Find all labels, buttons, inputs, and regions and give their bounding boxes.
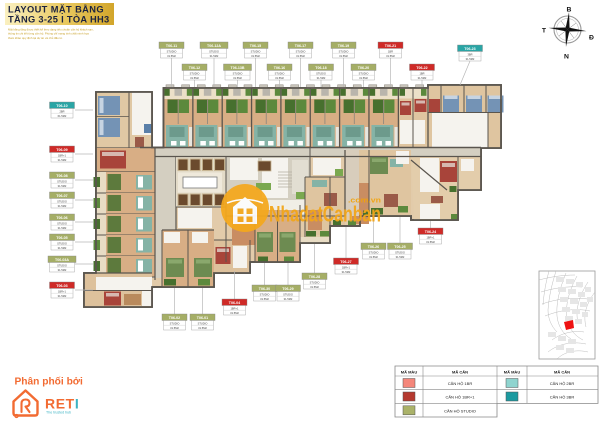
svg-text:Phân phối bởi: Phân phối bởi <box>15 376 84 388</box>
svg-text:31.5M2: 31.5M2 <box>369 255 378 259</box>
svg-text:T06-11: T06-11 <box>166 44 177 48</box>
svg-text:T06-13B: T06-13B <box>231 66 245 70</box>
svg-text:1BR: 1BR <box>388 50 393 54</box>
svg-text:31.5M2: 31.5M2 <box>58 158 67 162</box>
svg-text:31.5M2: 31.5M2 <box>58 226 67 230</box>
svg-text:T06-04: T06-04 <box>229 301 240 305</box>
svg-text:CĂN HỘ 3BR: CĂN HỘ 3BR <box>550 395 575 400</box>
svg-text:STUDIO: STUDIO <box>310 281 320 285</box>
svg-text:T06-08: T06-08 <box>56 174 67 178</box>
svg-text:STUDIO: STUDIO <box>57 222 67 226</box>
svg-text:31.5M2: 31.5M2 <box>339 54 348 58</box>
svg-text:T06-01: T06-01 <box>197 316 208 320</box>
svg-text:T06-17: T06-17 <box>295 44 306 48</box>
svg-text:MÃ CĂN: MÃ CĂN <box>554 370 570 375</box>
svg-text:STUDIO: STUDIO <box>57 180 67 184</box>
svg-text:31.5M2: 31.5M2 <box>230 311 239 315</box>
svg-text:31.5M2: 31.5M2 <box>426 240 435 244</box>
svg-text:31.5M2: 31.5M2 <box>260 297 269 301</box>
svg-text:STUDIO: STUDIO <box>395 251 405 255</box>
svg-text:T06-16: T06-16 <box>274 66 285 70</box>
svg-text:CĂN HỘ STUDIO: CĂN HỘ STUDIO <box>444 408 476 413</box>
svg-text:T06-21: T06-21 <box>385 44 396 48</box>
svg-text:3BR: 3BR <box>467 53 472 57</box>
svg-text:T06-28: T06-28 <box>309 275 320 279</box>
svg-text:MÃ MÀU: MÃ MÀU <box>401 370 418 375</box>
svg-text:STUDIO: STUDIO <box>251 50 261 54</box>
svg-text:31.5M2: 31.5M2 <box>58 268 67 272</box>
svg-text:31.5M2: 31.5M2 <box>418 76 427 80</box>
svg-text:CĂN HỘ 2BR: CĂN HỘ 2BR <box>550 381 575 386</box>
svg-text:CĂN HỘ 1BR: CĂN HỘ 1BR <box>448 381 473 386</box>
svg-text:T06-10: T06-10 <box>56 104 67 108</box>
svg-text:STUDIO: STUDIO <box>339 50 349 54</box>
svg-text:T06-24: T06-24 <box>425 230 436 234</box>
svg-text:31.5M2: 31.5M2 <box>284 297 293 301</box>
svg-text:31.5M2: 31.5M2 <box>167 54 176 58</box>
svg-text:T06-30: T06-30 <box>259 287 270 291</box>
svg-text:STUDIO: STUDIO <box>170 322 180 326</box>
svg-text:T06-05: T06-05 <box>56 236 67 240</box>
svg-text:STUDIO: STUDIO <box>57 264 67 268</box>
svg-text:T06-06: T06-06 <box>56 216 67 220</box>
svg-text:T06-20: T06-20 <box>358 66 369 70</box>
svg-text:STUDIO: STUDIO <box>369 251 379 255</box>
svg-text:NhadatCanban: NhadatCanban <box>269 202 381 227</box>
svg-text:T06-03: T06-03 <box>56 284 67 288</box>
svg-text:LAYOUT MẶT BẰNG: LAYOUT MẶT BẰNG <box>8 5 104 15</box>
svg-text:61.5M2: 61.5M2 <box>58 114 67 118</box>
svg-text:T06-15: T06-15 <box>250 44 261 48</box>
svg-text:STUDIO: STUDIO <box>167 50 177 54</box>
svg-text:MÃ MÀU: MÃ MÀU <box>504 370 521 375</box>
svg-text:STUDIO: STUDIO <box>260 293 270 297</box>
svg-text:1BR+1: 1BR+1 <box>58 290 67 294</box>
svg-text:RETI: RETI <box>45 396 79 412</box>
svg-text:31.5M2: 31.5M2 <box>58 204 67 208</box>
svg-text:2BR: 2BR <box>59 110 64 114</box>
svg-text:T06-09: T06-09 <box>56 148 67 152</box>
svg-text:31.5M2: 31.5M2 <box>466 57 475 61</box>
svg-text:T06-18: T06-18 <box>315 66 326 70</box>
svg-text:31.5M2: 31.5M2 <box>251 54 260 58</box>
svg-text:31.5M2: 31.5M2 <box>275 76 284 80</box>
svg-text:T06-29: T06-29 <box>282 287 293 291</box>
svg-text:STUDIO: STUDIO <box>316 72 326 76</box>
svg-text:CĂN HỘ 1BR+1: CĂN HỘ 1BR+1 <box>445 395 475 400</box>
svg-text:31.5M2: 31.5M2 <box>317 76 326 80</box>
svg-text:TẦNG 3-25 I TÒA HH3: TẦNG 3-25 I TÒA HH3 <box>8 14 109 25</box>
svg-text:1BR+1: 1BR+1 <box>426 236 435 240</box>
svg-text:31.5M2: 31.5M2 <box>233 76 242 80</box>
svg-text:31.5M2: 31.5M2 <box>58 246 67 250</box>
svg-text:31.5M2: 31.5M2 <box>342 270 351 274</box>
svg-text:31.5M2: 31.5M2 <box>198 326 207 330</box>
svg-text:N: N <box>564 54 569 61</box>
svg-text:1BR+1: 1BR+1 <box>230 307 239 311</box>
svg-text:tham khảo quy định tại dự án v: tham khảo quy định tại dự án và chủ đầu … <box>8 36 63 40</box>
svg-text:T06-12: T06-12 <box>189 66 200 70</box>
svg-text:STUDIO: STUDIO <box>57 200 67 204</box>
svg-text:STUDIO: STUDIO <box>275 72 285 76</box>
svg-text:31.5M2: 31.5M2 <box>296 54 305 58</box>
svg-text:.com.vn: .com.vn <box>348 196 381 205</box>
svg-text:T06-23: T06-23 <box>464 47 475 51</box>
svg-text:T06-03A: T06-03A <box>55 258 69 262</box>
svg-text:STUDIO: STUDIO <box>190 72 200 76</box>
svg-text:T06-22: T06-22 <box>416 66 427 70</box>
svg-text:1BR+1: 1BR+1 <box>342 266 351 270</box>
svg-text:The trusted hub: The trusted hub <box>46 411 71 415</box>
svg-text:MÃ CĂN: MÃ CĂN <box>452 370 468 375</box>
svg-text:31.5M2: 31.5M2 <box>396 255 405 259</box>
svg-text:T06-02: T06-02 <box>169 316 180 320</box>
svg-text:1BR+1: 1BR+1 <box>58 154 67 158</box>
svg-text:T06-12A: T06-12A <box>207 44 221 48</box>
svg-text:31.5M2: 31.5M2 <box>58 294 67 298</box>
svg-text:T06-27: T06-27 <box>340 260 351 264</box>
svg-text:T06-26: T06-26 <box>368 245 379 249</box>
svg-text:31.5M2: 31.5M2 <box>170 326 179 330</box>
svg-text:31.5M2: 31.5M2 <box>58 184 67 188</box>
svg-text:31.5M2: 31.5M2 <box>359 76 368 80</box>
svg-text:T06-25: T06-25 <box>394 245 405 249</box>
svg-text:STUDIO: STUDIO <box>283 293 293 297</box>
svg-text:Đ: Đ <box>589 35 594 42</box>
svg-text:STUDIO: STUDIO <box>198 322 208 326</box>
svg-text:T06-07: T06-07 <box>56 194 67 198</box>
svg-text:31.5M2: 31.5M2 <box>310 285 319 289</box>
svg-text:B: B <box>567 7 572 14</box>
svg-text:STUDIO: STUDIO <box>57 242 67 246</box>
svg-text:T06-19: T06-19 <box>338 44 349 48</box>
svg-text:1BR: 1BR <box>419 72 424 76</box>
svg-text:STUDIO: STUDIO <box>209 50 219 54</box>
svg-text:STUDIO: STUDIO <box>233 72 243 76</box>
svg-text:31.5M2: 31.5M2 <box>190 76 199 80</box>
svg-text:STUDIO: STUDIO <box>359 72 369 76</box>
svg-text:31.5M2: 31.5M2 <box>386 54 395 58</box>
svg-text:31.5M2: 31.5M2 <box>210 54 219 58</box>
svg-text:STUDIO: STUDIO <box>296 50 306 54</box>
